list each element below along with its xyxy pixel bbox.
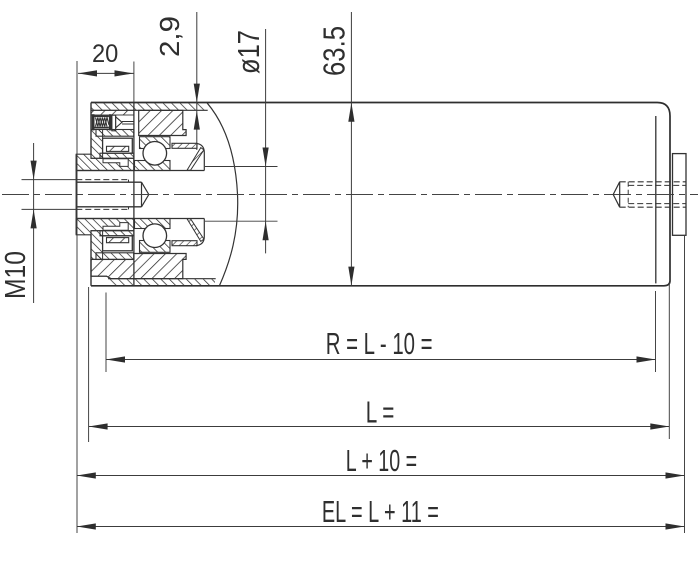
svg-text:2,9: 2,9 (154, 16, 185, 57)
svg-text:20: 20 (92, 40, 118, 68)
svg-text:M10: M10 (0, 251, 32, 299)
svg-text:R = L - 10 =: R = L - 10 = (326, 326, 433, 361)
svg-text:63.5: 63.5 (317, 26, 352, 76)
svg-text:EL = L + 11 =: EL = L + 11 = (322, 494, 439, 529)
svg-text:L + 10 =: L + 10 = (346, 443, 417, 478)
svg-text:ø17: ø17 (231, 30, 266, 74)
svg-text:L =: L = (366, 395, 395, 430)
